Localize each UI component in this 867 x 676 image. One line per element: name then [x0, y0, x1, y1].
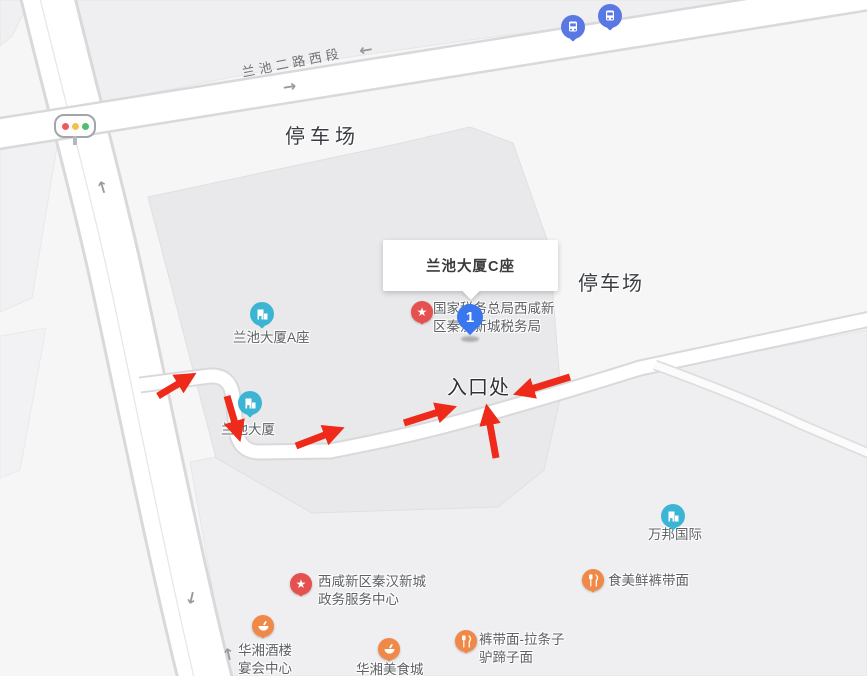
lane-direction-left-icon: ↑ — [358, 42, 376, 58]
poi-label-wanbang-intl[interactable]: 万邦国际 — [648, 526, 702, 544]
parking-lot-label-east: 停车场 — [578, 267, 644, 296]
building-icon — [242, 395, 259, 412]
info-popup-title: 兰池大厦C座 — [426, 255, 515, 276]
poi-label-tax-bureau[interactable]: 国家税务总局西咸新 区秦汉新城税务局 — [433, 300, 555, 336]
poi-marker-lanchi-tower[interactable] — [238, 391, 262, 415]
entrance-label: 入口处 — [447, 371, 510, 400]
parking-lot-label-north: 停车场 — [285, 120, 360, 149]
bus-icon — [565, 19, 581, 35]
route-marker-1[interactable]: 1 — [457, 304, 483, 330]
route-marker-shadow — [461, 336, 479, 342]
building-icon — [254, 306, 271, 323]
poi-label-lanchi-tower-a[interactable]: 兰池大厦A座 — [233, 329, 310, 347]
building-icon — [665, 508, 682, 525]
bus-stop-marker-1[interactable] — [561, 15, 585, 39]
poi-label-huaxiang-food-city[interactable]: 华湘美食城 — [356, 661, 424, 676]
poi-marker-wanbang-intl[interactable] — [661, 504, 685, 528]
poi-label-kudaimian[interactable]: 裤带面-拉条子 驴蹄子面 — [479, 631, 565, 667]
poi-marker-shimei-noodle[interactable] — [582, 569, 604, 591]
map-viewport[interactable]: 兰池二路西段 ↑ ↑ ↑ ↑ ↑ 停车场 停车场 入口处 兰池大厦A座 — [0, 0, 867, 676]
poi-label-lanchi-tower[interactable]: 兰池大厦 — [221, 421, 275, 439]
bus-icon — [602, 8, 618, 24]
fork-knife-icon — [586, 573, 601, 588]
poi-label-gov-service-center[interactable]: 西咸新区秦汉新城 政务服务中心 — [318, 573, 426, 609]
traffic-light-yellow — [72, 123, 79, 130]
poi-marker-kudaimian[interactable] — [455, 630, 477, 652]
poi-marker-tax-bureau[interactable]: ★ — [411, 301, 433, 323]
poi-marker-huaxiang-banquet[interactable] — [252, 615, 274, 637]
traffic-light-green — [82, 123, 89, 130]
star-icon: ★ — [417, 306, 428, 318]
poi-marker-huaxiang-food-city[interactable] — [378, 638, 400, 660]
lane-direction-right-icon: ↑ — [280, 79, 298, 95]
poi-label-huaxiang-banquet[interactable]: 华湘酒楼 宴会中心 — [238, 642, 292, 676]
traffic-light-red — [62, 123, 69, 130]
info-popup[interactable]: 兰池大厦C座 — [383, 240, 558, 291]
poi-marker-gov-service-center[interactable]: ★ — [290, 573, 312, 595]
bowl-icon — [382, 642, 397, 657]
bowl-icon — [256, 619, 271, 634]
route-marker-number: 1 — [466, 309, 474, 326]
fork-knife-icon — [459, 634, 474, 649]
map-canvas[interactable] — [0, 0, 867, 676]
star-icon: ★ — [296, 578, 307, 590]
traffic-light-icon — [54, 114, 96, 138]
bus-stop-marker-2[interactable] — [598, 4, 622, 28]
poi-label-shimei-noodle[interactable]: 食美鲜裤带面 — [608, 572, 689, 590]
poi-marker-lanchi-tower-a[interactable] — [250, 302, 274, 326]
